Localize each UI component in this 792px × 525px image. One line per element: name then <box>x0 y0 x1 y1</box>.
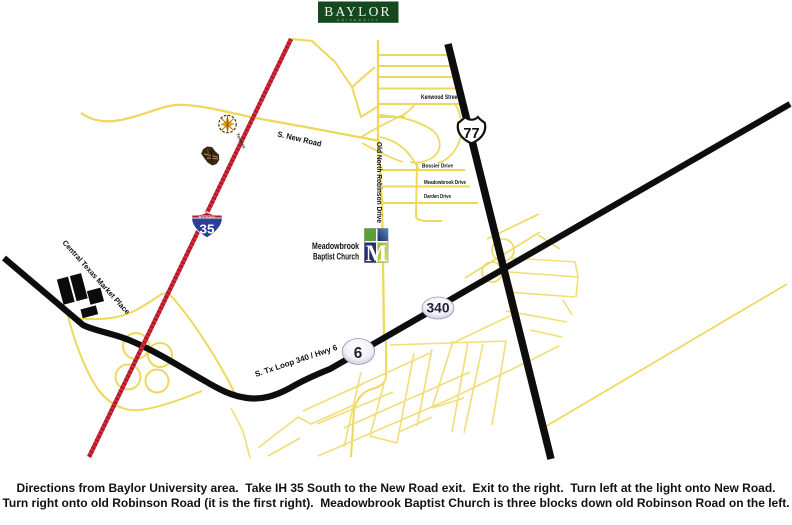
svg-text:Baptist Church: Baptist Church <box>313 252 359 262</box>
svg-text:M: M <box>365 241 387 266</box>
svg-text:BAYLOR: BAYLOR <box>324 4 391 19</box>
svg-text:6: 6 <box>354 345 363 362</box>
svg-text:Darden Drive: Darden Drive <box>424 194 452 200</box>
svg-text:35: 35 <box>200 222 216 237</box>
svg-text:Old North Robinson Drive: Old North Robinson Drive <box>375 142 384 223</box>
svg-text:Meadowbrook Drive: Meadowbrook Drive <box>424 180 467 186</box>
svg-text:Bossier Drive: Bossier Drive <box>422 164 454 170</box>
svg-text:S. New Road: S. New Road <box>277 130 323 149</box>
svg-text:Meadowbrook: Meadowbrook <box>312 241 360 251</box>
svg-text:340: 340 <box>426 301 449 316</box>
svg-text:UNIVERSITY: UNIVERSITY <box>337 18 380 22</box>
svg-text:77: 77 <box>463 126 479 142</box>
svg-text:Kenwood Street: Kenwood Street <box>421 94 460 101</box>
svg-text:INTERSTATE: INTERSTATE <box>199 214 216 218</box>
